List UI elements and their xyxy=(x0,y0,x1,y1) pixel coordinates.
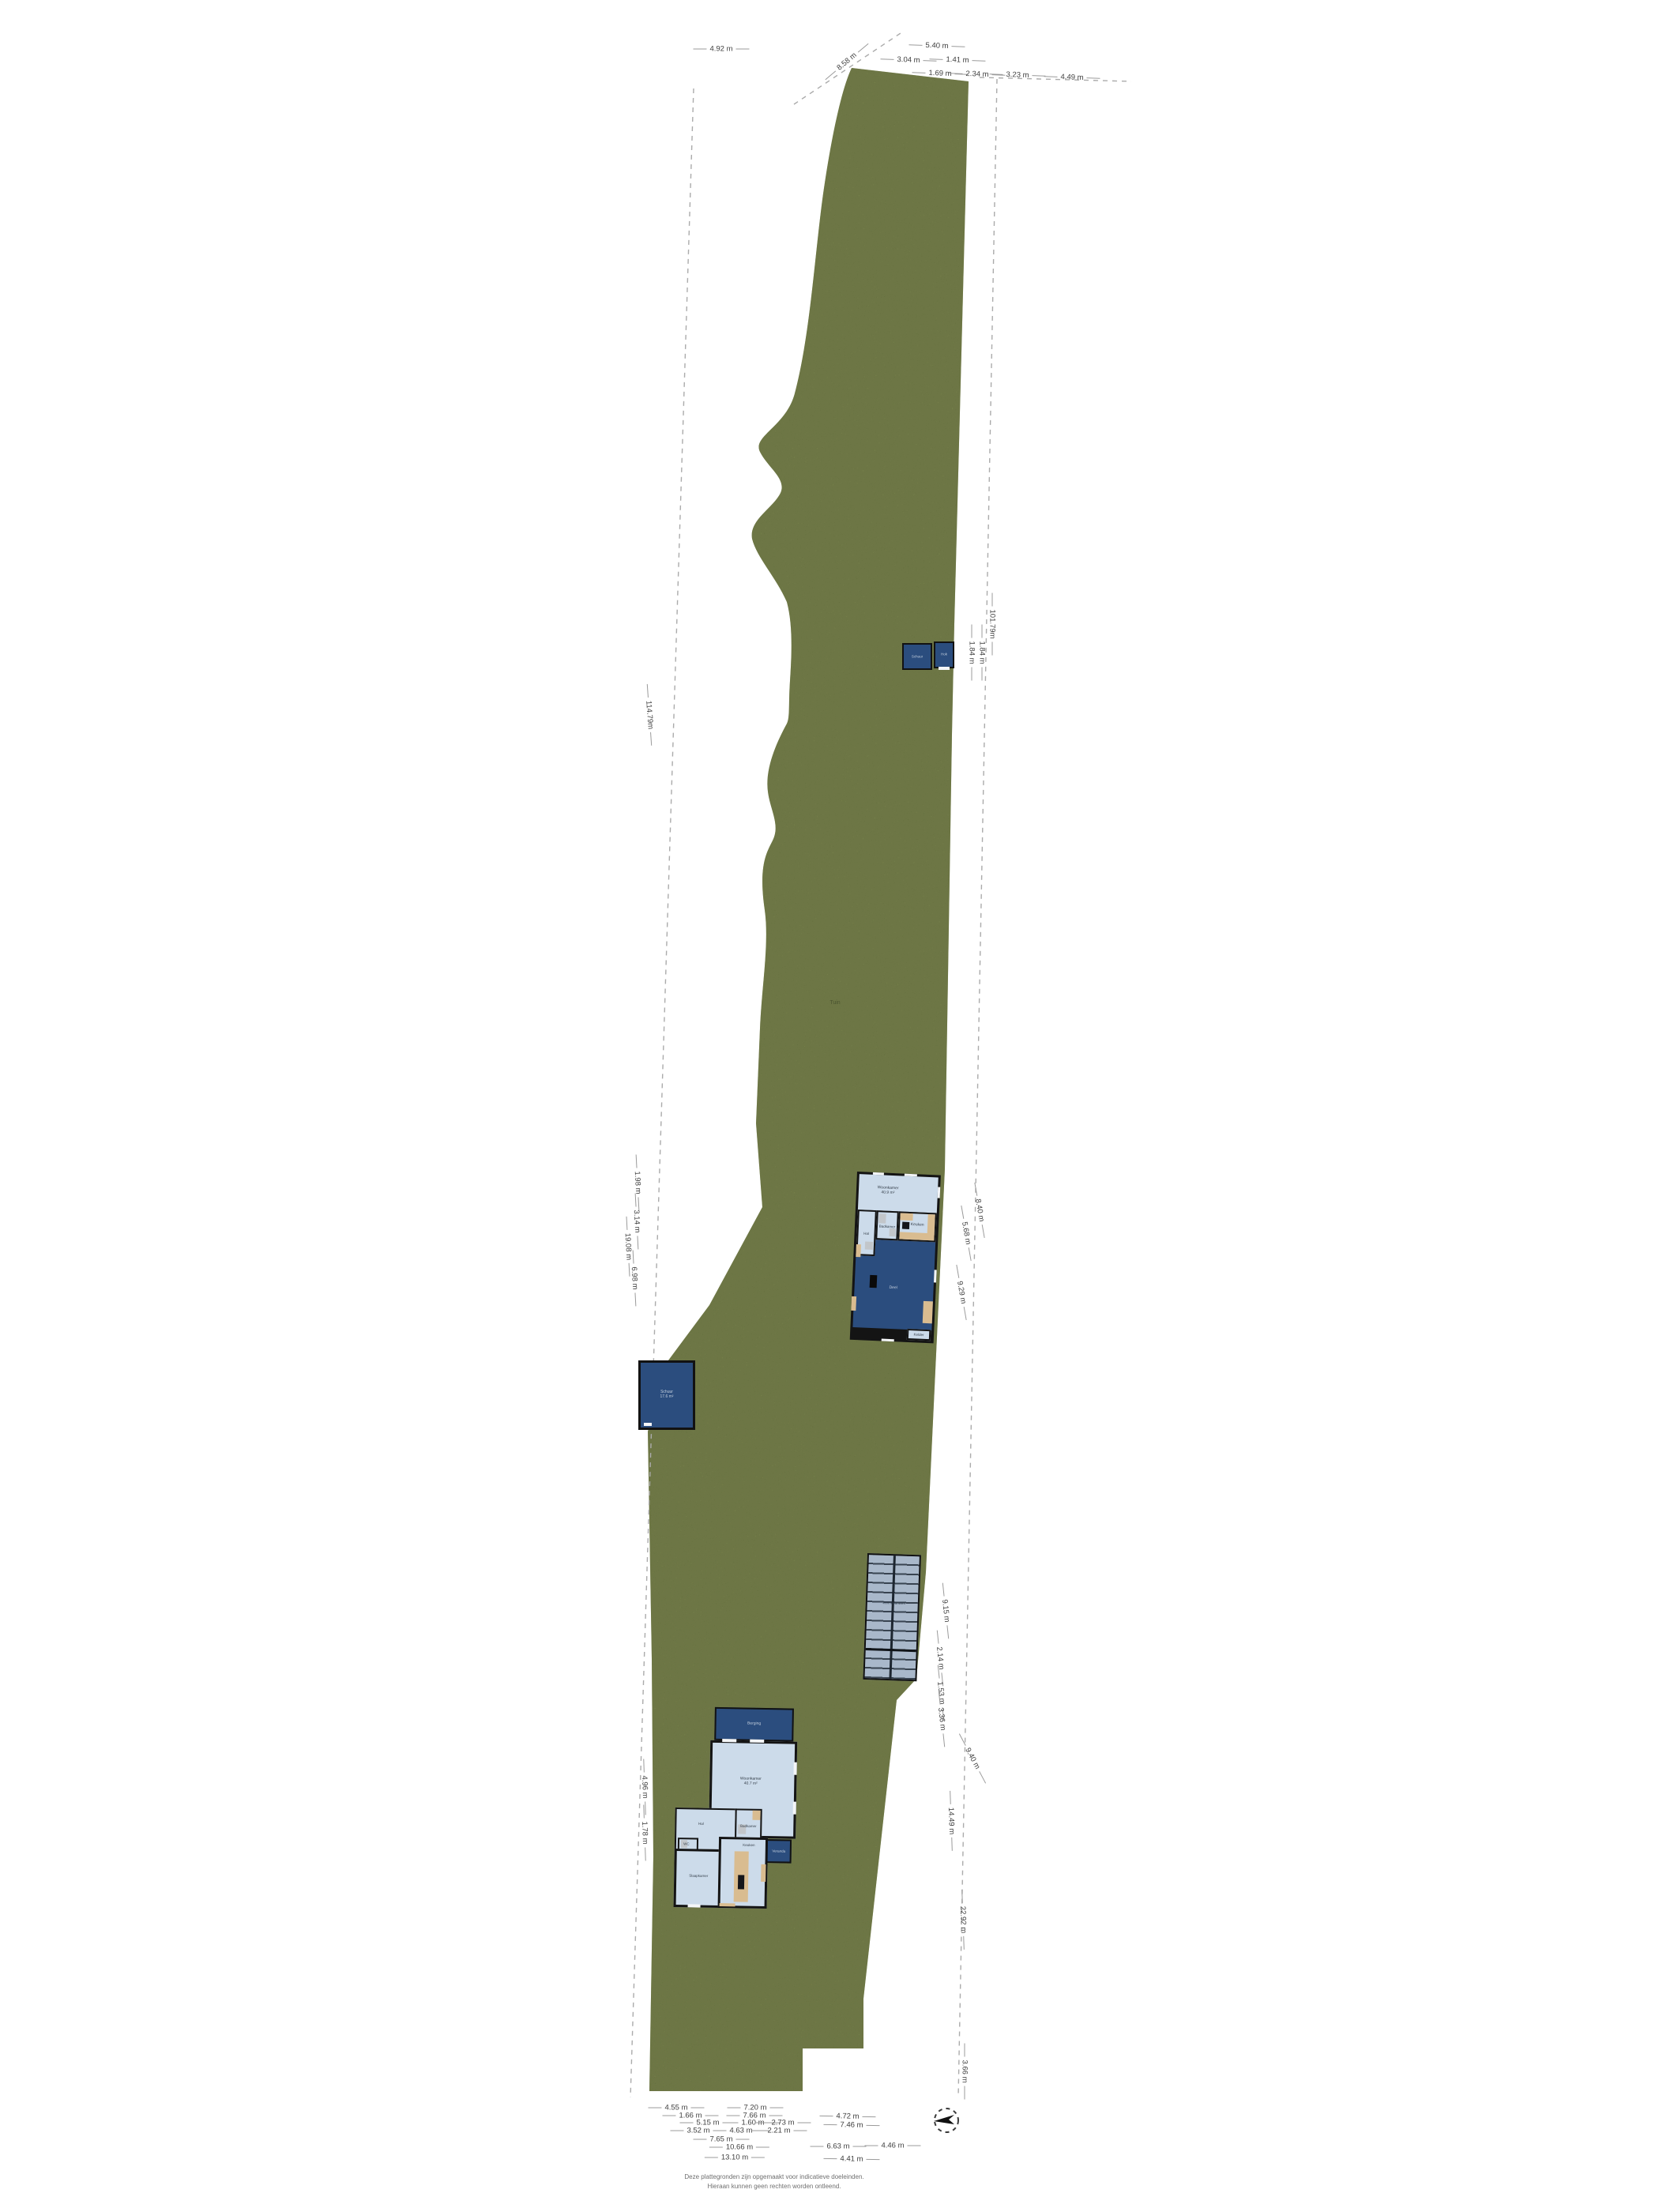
dimension-label: 2.21 m xyxy=(750,2127,807,2135)
farmhouse-badkamer-label: Badkamer xyxy=(879,1224,896,1229)
bathroom-counter xyxy=(752,1811,760,1820)
door xyxy=(720,1903,735,1906)
dimension-label: 4.92 m xyxy=(693,45,749,54)
shed-door xyxy=(644,1423,652,1426)
shed-mid: Schuur17.6 m² xyxy=(638,1360,695,1430)
dimension-label: 13.10 m xyxy=(705,2154,765,2162)
disclaimer-line-1: Deze plattegronden zijn opgemaakt voor i… xyxy=(684,2172,863,2182)
lower-house: Berging Woonkamer40.7 m² Hal Badkamer WC… xyxy=(671,1705,799,1911)
dimension-label: 6.63 m xyxy=(810,2142,866,2151)
solar-panel-array: Zonnepanelen xyxy=(863,1553,921,1681)
garden-label: Tuin xyxy=(829,1000,840,1006)
window xyxy=(722,1739,736,1742)
window xyxy=(750,1740,764,1743)
disclaimer-line-2: Hieraan kunnen geen rechten worden ontle… xyxy=(684,2182,863,2191)
shed-mid-label: Schuur17.6 m² xyxy=(647,1390,687,1399)
disclaimer-text: Deze plattegronden zijn opgemaakt voor i… xyxy=(684,2172,863,2191)
barn-fixture xyxy=(865,1242,873,1250)
barn-post xyxy=(870,1275,878,1288)
shed-top-right-label: Hok xyxy=(941,652,947,656)
farmhouse-kelder-label: Kelder xyxy=(913,1333,924,1337)
farmhouse-deel-label: Deel xyxy=(889,1285,897,1290)
bathroom-fixture xyxy=(878,1213,886,1223)
site-plan-canvas: Schuur Hok Woonkamer40.9 m² Keuken Badka… xyxy=(0,0,1659,2212)
house-hal-label: Hal xyxy=(698,1822,704,1826)
dimension-label: 1.84 m xyxy=(978,624,987,680)
house-keuken-label: Keuken xyxy=(743,1843,754,1848)
dimension-label: 7.46 m xyxy=(823,2120,879,2130)
site-plan-svg xyxy=(0,0,1659,2212)
shed-top: Schuur Hok xyxy=(902,641,954,673)
farmhouse-keuken-label: Keuken xyxy=(911,1222,924,1228)
house-wc-label: WC xyxy=(683,1842,690,1847)
north-arrow-icon xyxy=(934,2109,958,2132)
dimension-label: 3.66 m xyxy=(961,2043,969,2099)
house-berging-label: Berging xyxy=(747,1721,761,1726)
barn-door xyxy=(851,1296,856,1311)
kitchen-counter xyxy=(927,1214,935,1235)
bathroom-fixture xyxy=(889,1228,895,1236)
panel-center-rail xyxy=(889,1556,895,1679)
dimension-label: 4.41 m xyxy=(823,2154,879,2164)
farmhouse: Woonkamer40.9 m² Keuken Badkamer Hal Dee… xyxy=(850,1172,941,1343)
house-slaapkamer-label: Slaapkamer xyxy=(689,1874,708,1879)
dimension-label: 101.79m xyxy=(988,593,997,656)
window xyxy=(873,1172,884,1176)
farmhouse-hal-label: Hal xyxy=(863,1232,869,1236)
kitchen-counter xyxy=(900,1213,912,1221)
window xyxy=(905,1174,917,1177)
window xyxy=(882,1339,894,1342)
window xyxy=(793,1762,796,1775)
barn-door xyxy=(856,1244,861,1257)
house-woonkamer-label: Woonkamer40.7 m² xyxy=(727,1776,774,1786)
solar-panel-label: Zonnepanelen xyxy=(882,1601,905,1605)
window xyxy=(688,1904,701,1907)
shed-top-door xyxy=(939,667,950,670)
kitchen-appliance xyxy=(902,1222,909,1229)
shed-top-left-label: Schuur xyxy=(912,654,923,658)
door xyxy=(761,1864,766,1882)
window xyxy=(938,1187,941,1198)
dimension-label: 1.84 m xyxy=(968,624,976,680)
dimension-label: 4.46 m xyxy=(864,2142,920,2150)
house-badkamer-label: Badkamer xyxy=(740,1824,757,1829)
kitchen-appliance xyxy=(738,1875,744,1889)
dimension-label: 10.66 m xyxy=(709,2143,769,2152)
farmhouse-woonkamer-label: Woonkamer40.9 m² xyxy=(866,1185,910,1196)
window xyxy=(793,1802,796,1815)
barn-door xyxy=(923,1301,933,1323)
house-veranda-label: Veranda xyxy=(772,1849,785,1853)
